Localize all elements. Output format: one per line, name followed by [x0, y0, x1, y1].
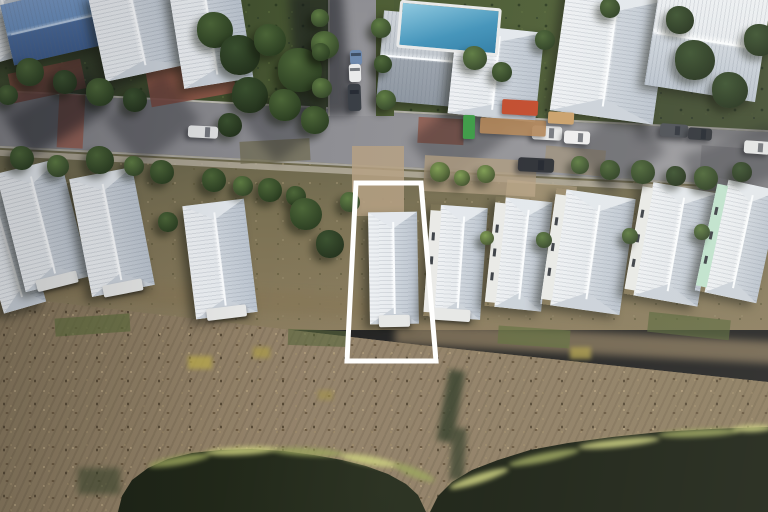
shore-grass	[148, 451, 211, 471]
shore-grass	[205, 445, 277, 457]
shore-grass	[578, 435, 660, 452]
shore-grass	[448, 465, 510, 493]
shore-grass	[732, 424, 768, 432]
shore-grass	[658, 427, 740, 439]
shore-grass-layer	[0, 0, 768, 512]
shore-grass	[272, 446, 344, 458]
shore-grass	[508, 446, 580, 470]
aerial-photo	[0, 0, 768, 512]
shore-grass	[392, 460, 436, 485]
shore-grass	[340, 451, 399, 470]
